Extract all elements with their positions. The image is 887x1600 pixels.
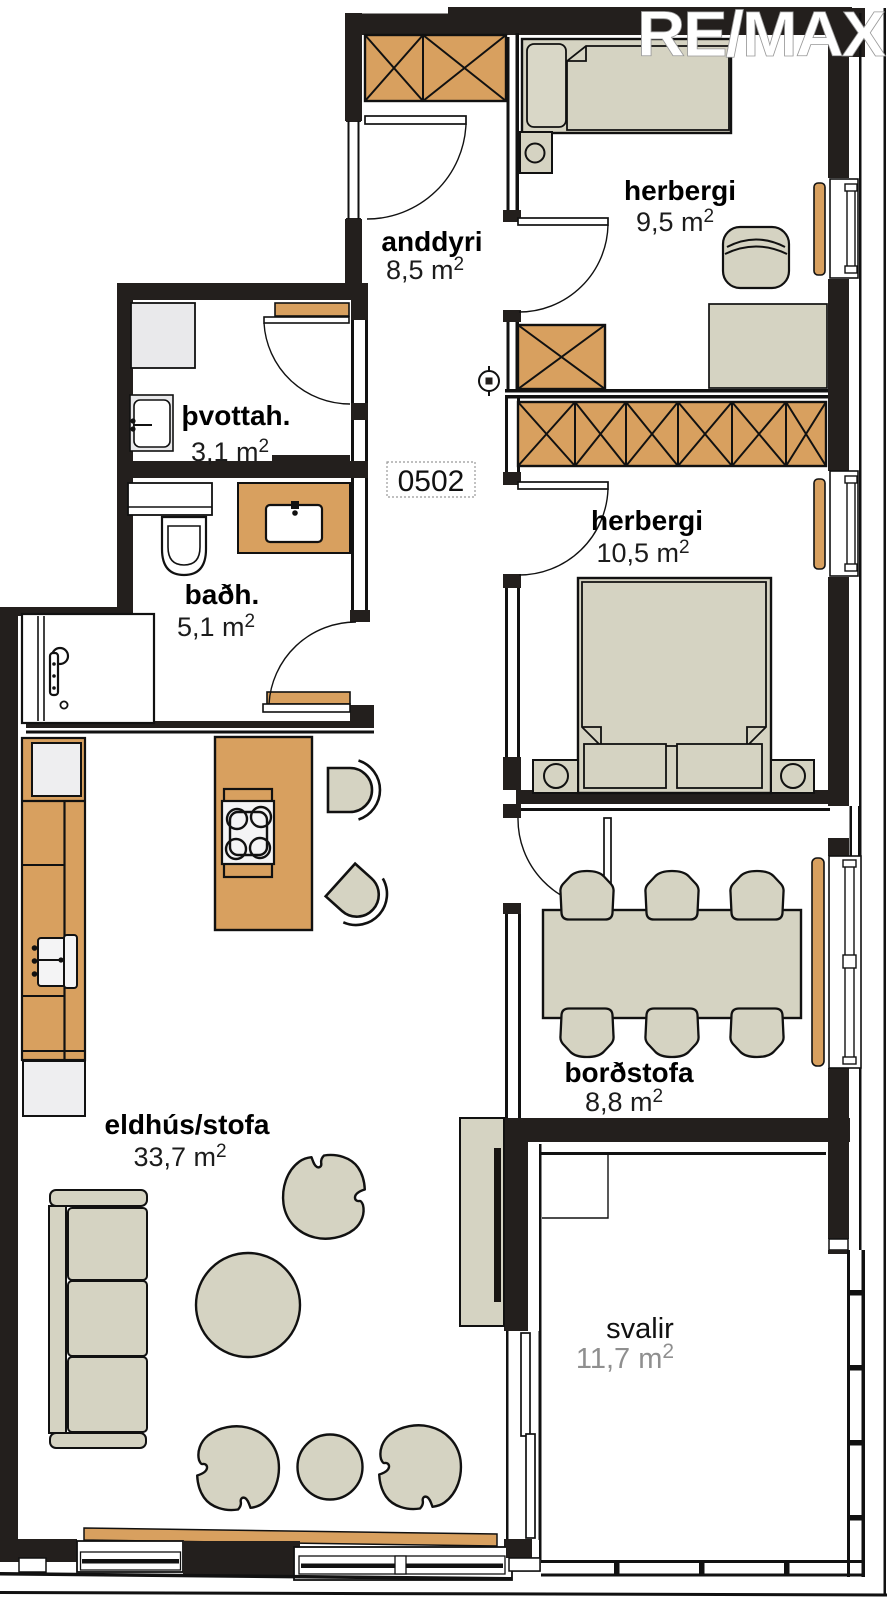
svg-text:baðh.: baðh. — [185, 579, 260, 610]
svg-text:8,8 m2: 8,8 m2 — [585, 1086, 663, 1117]
svg-text:8,5 m2: 8,5 m2 — [386, 254, 464, 285]
svg-text:herbergi: herbergi — [591, 505, 703, 536]
svg-text:5,1 m2: 5,1 m2 — [177, 611, 255, 642]
svg-text:3,1 m2: 3,1 m2 — [191, 436, 269, 467]
svg-text:11,7 m2: 11,7 m2 — [576, 1340, 674, 1375]
svg-text:anddyri: anddyri — [381, 226, 482, 257]
svg-text:herbergi: herbergi — [624, 175, 736, 206]
svg-text:10,5 m2: 10,5 m2 — [596, 537, 689, 568]
svg-text:33,7 m2: 33,7 m2 — [133, 1141, 226, 1172]
svg-text:þvottah.: þvottah. — [182, 400, 291, 431]
svg-text:borðstofa: borðstofa — [564, 1057, 694, 1088]
svg-text:RE/MAX: RE/MAX — [637, 0, 886, 70]
svg-text:eldhús/stofa: eldhús/stofa — [105, 1109, 270, 1140]
svg-text:0502: 0502 — [398, 465, 465, 498]
svg-text:9,5 m2: 9,5 m2 — [636, 206, 714, 237]
